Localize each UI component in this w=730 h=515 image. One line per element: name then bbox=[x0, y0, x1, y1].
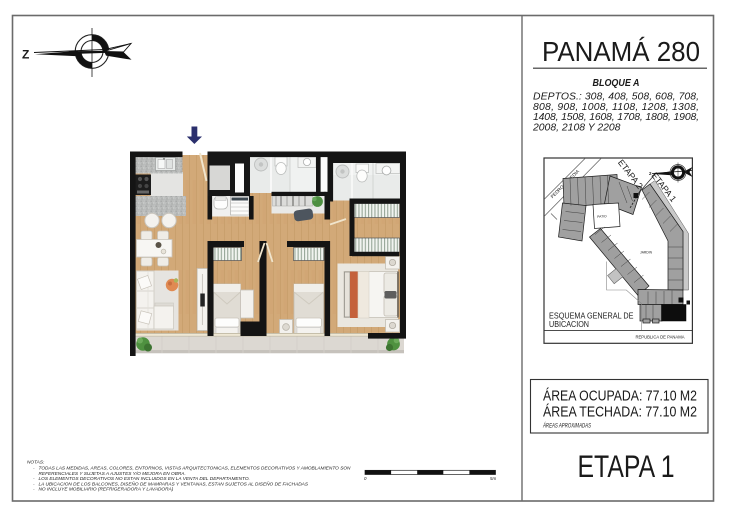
svg-text:NOTAS:: NOTAS: bbox=[27, 460, 45, 466]
svg-text:JARDIN: JARDIN bbox=[640, 251, 653, 255]
svg-text:ÁREAS APROXIMADAS: ÁREAS APROXIMADAS bbox=[542, 422, 591, 429]
svg-text:LOS ELEMENTOS DECORATIVOS NO E: LOS ELEMENTOS DECORATIVOS NO ESTAN INCLU… bbox=[39, 476, 250, 482]
svg-text:808, 908, 1008, 1108, 1208, 13: 808, 908, 1008, 1108, 1208, 1308, bbox=[533, 102, 699, 113]
svg-text:ÁREA OCUPADA: 77.10 M2: ÁREA OCUPADA: 77.10 M2 bbox=[543, 388, 697, 405]
svg-text:ÁREA TECHADA: 77.10 M2: ÁREA TECHADA: 77.10 M2 bbox=[543, 404, 697, 421]
svg-text:NO INCLUYE MOBILIARIO (REFRIGE: NO INCLUYE MOBILIARIO (REFRIGERADORA Y L… bbox=[39, 487, 174, 493]
svg-text:BLOQUE A: BLOQUE A bbox=[593, 77, 640, 89]
svg-text:5m: 5m bbox=[490, 476, 496, 481]
svg-text:1408, 1508, 1608, 1708, 1808,: 1408, 1508, 1608, 1708, 1808, 1908, bbox=[533, 112, 699, 123]
svg-text:PATIO: PATIO bbox=[597, 214, 607, 219]
svg-text:DEPTOS.: 308, 408, 508, 608, 7: DEPTOS.: 308, 408, 508, 608, 708, bbox=[533, 91, 699, 102]
svg-text:TODAS LAS MEDIDAS, AREAS, COLO: TODAS LAS MEDIDAS, AREAS, COLORES, ENTOR… bbox=[39, 466, 352, 472]
svg-text:PANAMÁ 280: PANAMÁ 280 bbox=[542, 36, 700, 67]
svg-text:REFERENCIALES Y SUJETAS A AJUS: REFERENCIALES Y SUJETAS A AJUSTES Y/O ME… bbox=[39, 471, 186, 477]
svg-text:2008, 2108 Y 2208: 2008, 2108 Y 2208 bbox=[532, 123, 621, 134]
svg-text:REPUBLICA DE PANAMA: REPUBLICA DE PANAMA bbox=[635, 335, 684, 340]
svg-text:LA UBICACION DE LOS BALCONES,: LA UBICACION DE LOS BALCONES, DISEÑO DE … bbox=[39, 480, 309, 487]
svg-text:UBICACION: UBICACION bbox=[549, 319, 589, 329]
svg-text:ETAPA 1: ETAPA 1 bbox=[578, 448, 675, 484]
svg-text:Z: Z bbox=[22, 48, 29, 62]
